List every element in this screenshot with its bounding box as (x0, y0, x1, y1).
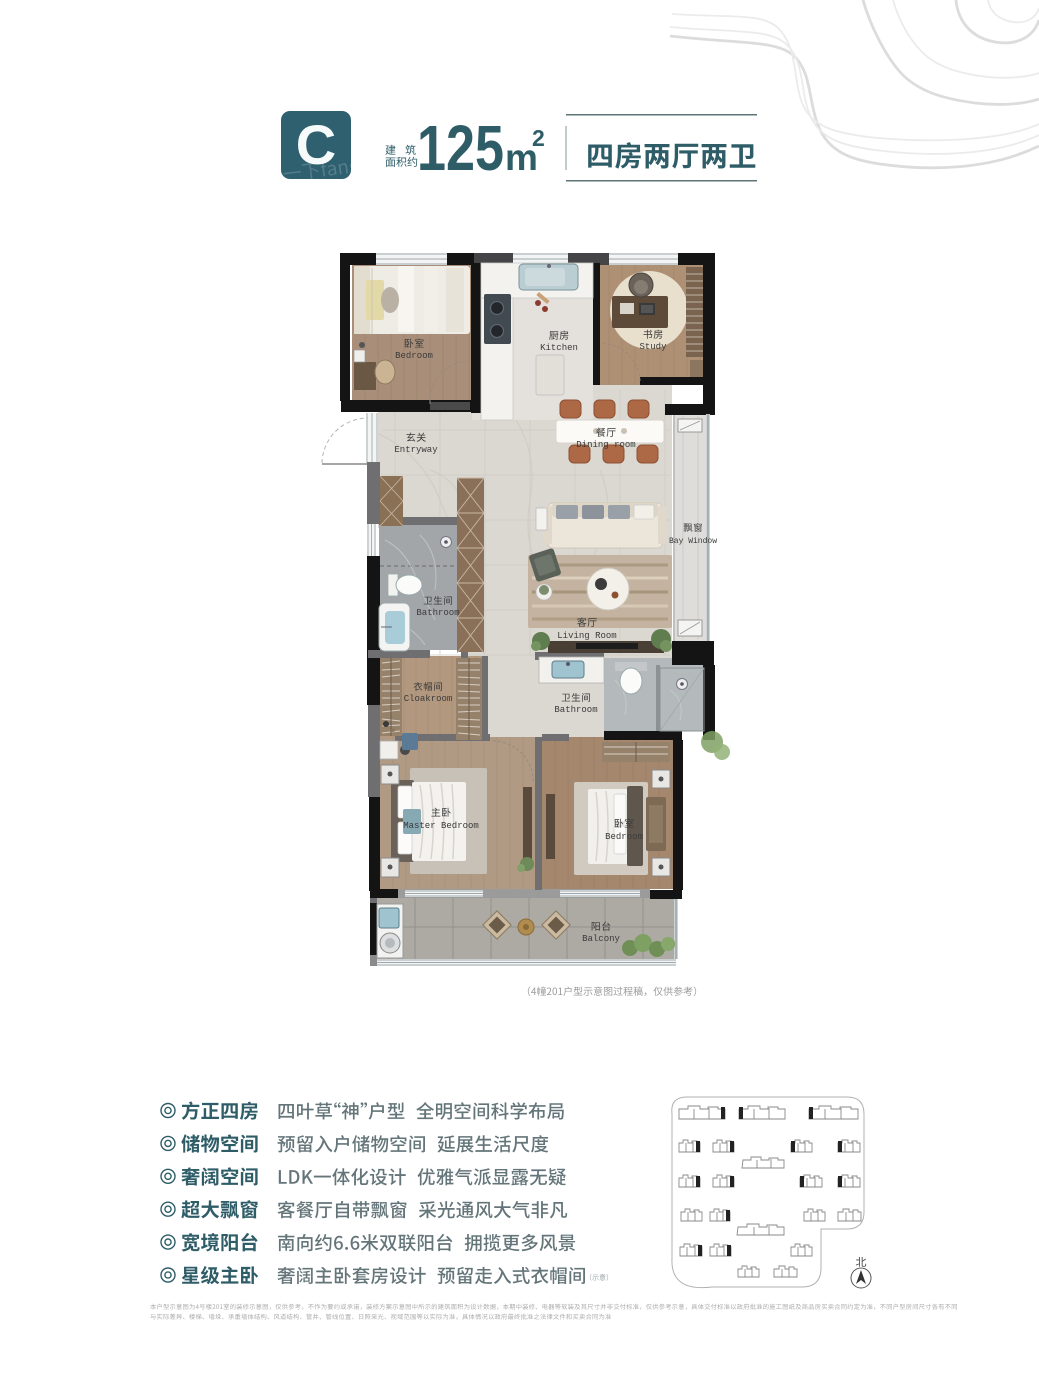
svg-text:Entryway: Entryway (394, 445, 438, 455)
svg-text:Bathroom: Bathroom (416, 608, 459, 618)
svg-text:Bedroom: Bedroom (605, 832, 643, 842)
svg-text:Dining room: Dining room (576, 440, 635, 450)
svg-text:Bathroom: Bathroom (554, 705, 597, 715)
svg-text:Bay Window: Bay Window (669, 537, 717, 546)
svg-text:Cloakroom: Cloakroom (404, 694, 453, 704)
svg-text:Study: Study (639, 342, 667, 352)
svg-text:Kitchen: Kitchen (540, 343, 578, 353)
svg-text:Master Bedroom: Master Bedroom (403, 821, 479, 831)
svg-text:Balcony: Balcony (582, 934, 620, 944)
svg-text:2: 2 (532, 125, 545, 151)
svg-text:Bedroom: Bedroom (395, 351, 433, 361)
svg-text:Living Room: Living Room (557, 631, 616, 641)
svg-text:125: 125 (417, 112, 504, 184)
